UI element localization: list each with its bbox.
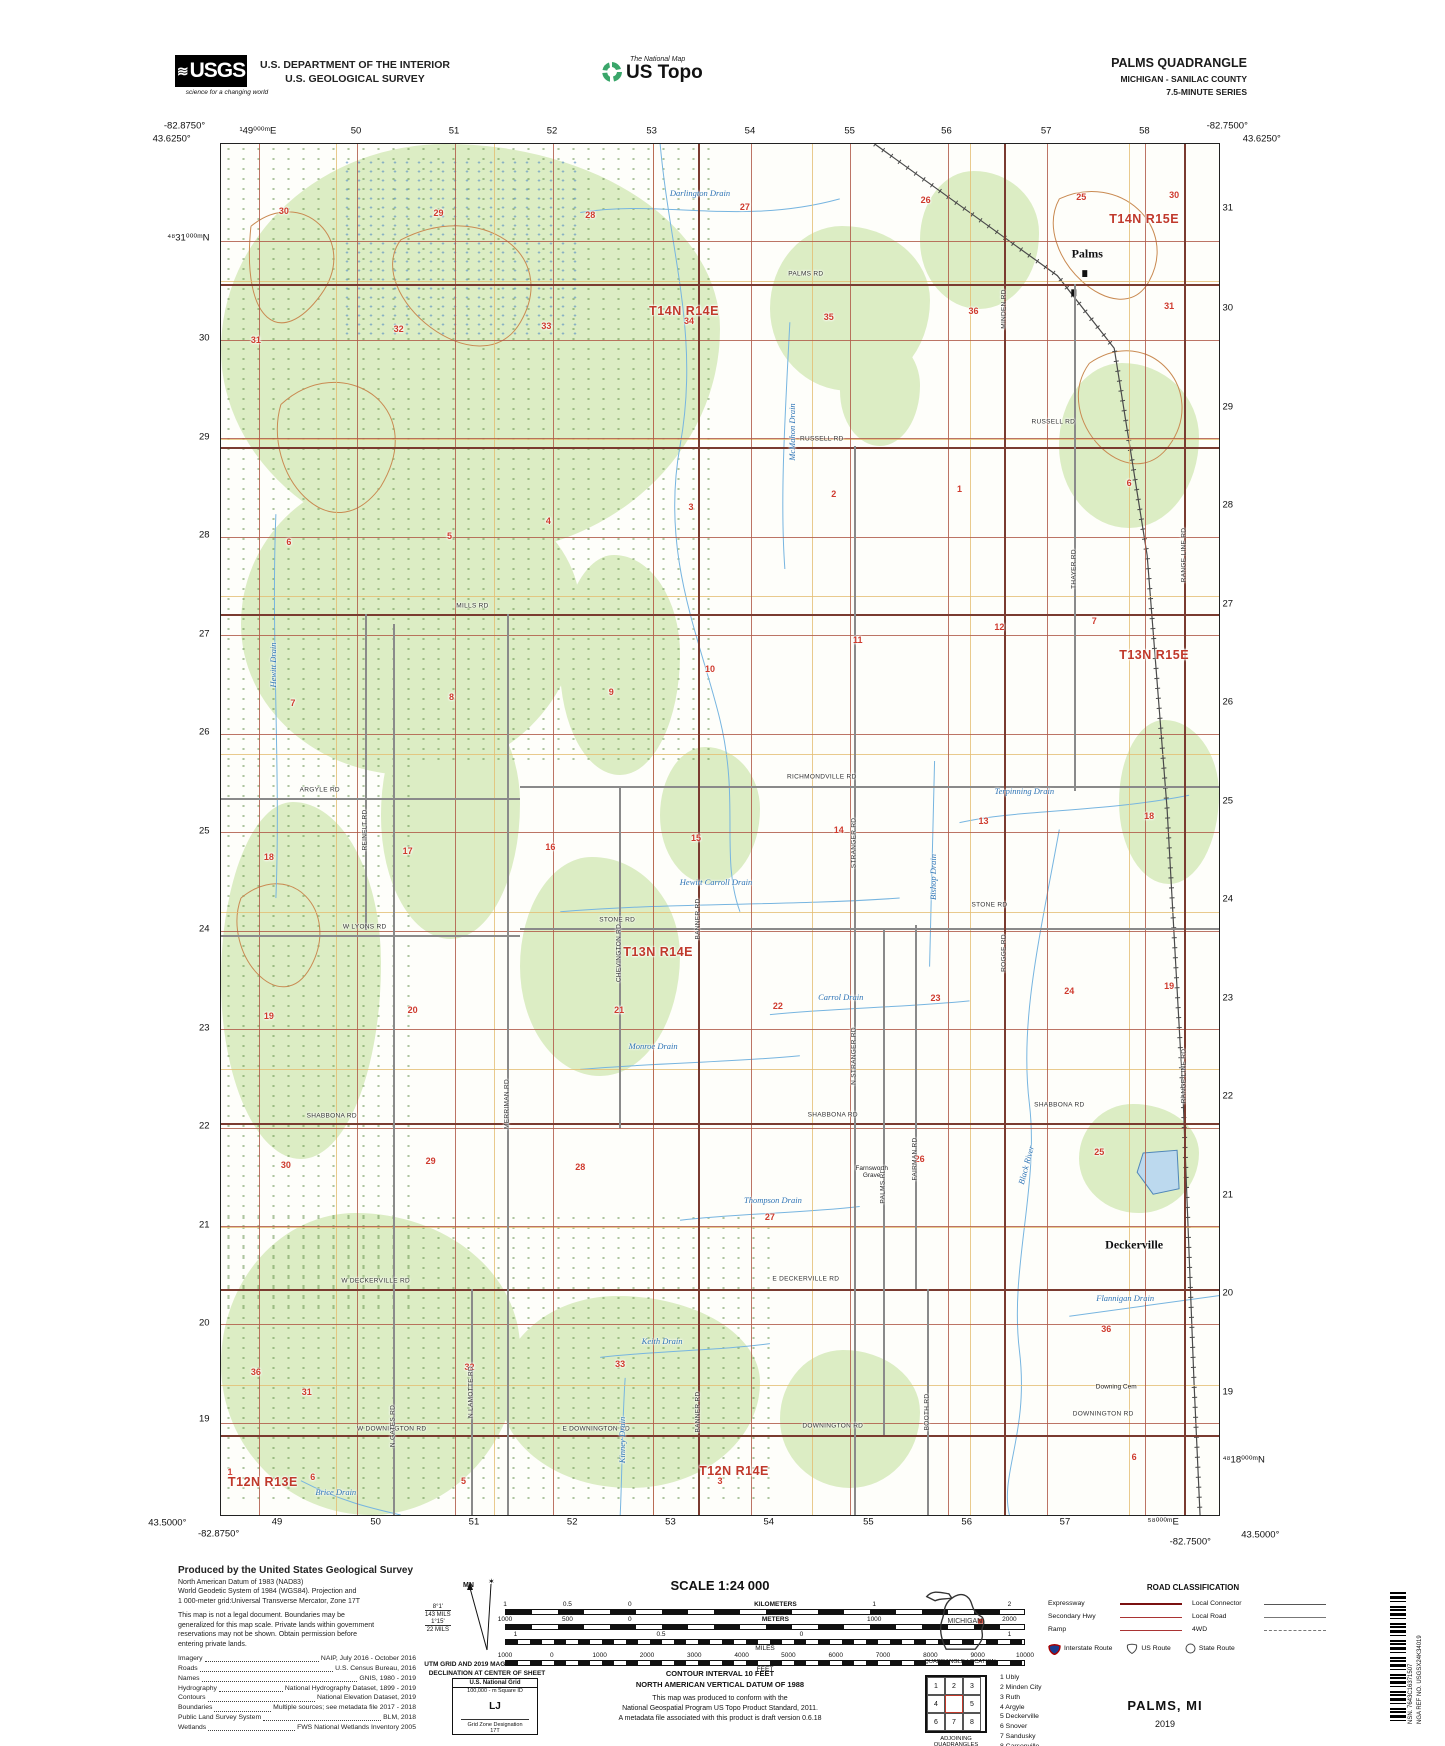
adjoining-cell: 4	[927, 1695, 945, 1713]
road-label: SHABBONA RD	[808, 1111, 858, 1118]
section-number: 27	[740, 202, 750, 212]
utm-grid-line	[455, 144, 456, 1515]
nsn-number: NSN. 7643C16371507	[1408, 1664, 1414, 1724]
section-number: 22	[773, 1001, 783, 1011]
section-line	[221, 281, 1219, 282]
road-label: DOWNINGTON RD	[802, 1422, 863, 1429]
grid-easting-label: 56	[941, 125, 952, 136]
road-line	[365, 614, 367, 929]
grid-easting-label: 55	[844, 125, 855, 136]
section-number: 9	[609, 687, 614, 697]
grid-easting-label: 50	[351, 125, 362, 136]
road-line	[520, 786, 1219, 788]
utm-grid-line	[221, 734, 1219, 735]
section-number: 6	[310, 1472, 315, 1482]
utm-grid-line	[1047, 144, 1048, 1515]
utm-grid-line	[259, 144, 260, 1515]
us-route-shield-icon: US Route	[1126, 1643, 1170, 1654]
road-label: BANNER RD	[695, 898, 702, 939]
section-number: 20	[408, 1005, 418, 1015]
scale-tick-label: 0.5	[563, 1601, 572, 1608]
road-label: MERRIMAN RD	[504, 1079, 511, 1129]
section-number: 19	[264, 1011, 274, 1021]
barcode	[1390, 1592, 1406, 1724]
drain-label: Kinney Drain	[617, 1416, 627, 1463]
grid-easting-label: 52	[567, 1516, 578, 1527]
map-sheet-area[interactable]: 3029282726253031323334353631654321678910…	[220, 143, 1220, 1516]
utm-grid-line	[221, 832, 1219, 833]
usng-square-id: LJ	[453, 1701, 537, 1712]
scale-tick-label: 7000	[876, 1652, 890, 1659]
section-line	[221, 754, 1219, 755]
road-line	[520, 928, 1219, 930]
grid-easting-label: 57	[1060, 1516, 1071, 1527]
utm-grid-line	[221, 537, 1219, 538]
map-artwork	[221, 144, 1219, 1515]
road-label: RUSSELL RD	[1032, 419, 1076, 426]
scale-tick-label: 500	[562, 1616, 573, 1623]
section-number: 5	[447, 531, 452, 541]
grid-easting-label: 56	[961, 1516, 972, 1527]
section-number: 7	[1092, 616, 1097, 626]
palms-building	[1082, 270, 1087, 277]
section-line	[336, 144, 337, 1515]
scale-tick-label: METERS	[762, 1616, 789, 1623]
scale-tick-label: 1000	[592, 1652, 606, 1659]
grid-northing-label: 21	[1222, 1189, 1233, 1200]
section-number: 36	[1101, 1324, 1111, 1334]
town-label: Palms	[1072, 246, 1103, 261]
road-line	[221, 1289, 1219, 1291]
scale-tick-label: 10000	[1016, 1652, 1034, 1659]
section-line	[1129, 144, 1130, 1515]
adjoining-quad-name: 1 Ubly	[1000, 1673, 1042, 1683]
grid-northing-label: 20	[1222, 1287, 1233, 1298]
road-line	[915, 925, 917, 1288]
section-number: 28	[575, 1162, 585, 1172]
grid-easting-label: 54	[763, 1516, 774, 1527]
section-number: 29	[434, 208, 444, 218]
section-number: 2	[831, 489, 836, 499]
data-credits-list: ImageryNAIP, July 2016 - October 2016Roa…	[178, 1654, 416, 1733]
road-line	[698, 144, 700, 1515]
section-line	[970, 144, 971, 1515]
section-number: 33	[541, 321, 551, 331]
grid-northing-label: 29	[199, 432, 210, 443]
section-number: 29	[426, 1156, 436, 1166]
grid-northing-label: ⁴⁸18⁰⁰⁰ᵐN	[1222, 1455, 1264, 1466]
section-number: 15	[691, 833, 701, 843]
utm-grid-line	[653, 144, 654, 1515]
adjoining-quad-name: 4 Argyle	[1000, 1703, 1042, 1713]
section-number: 4	[546, 516, 551, 526]
road-line	[221, 935, 520, 937]
utm-grid-line	[357, 144, 358, 1515]
declination-values: 8°1' 143 MILS 1°15' 22 MILS	[425, 1604, 451, 1634]
credit-row: BoundariesMultiple sources; see metadata…	[178, 1703, 416, 1713]
road-line	[507, 614, 509, 1515]
grid-northing-label: 23	[1222, 993, 1233, 1004]
utm-grid-line	[221, 1226, 1219, 1227]
road-line	[221, 1123, 1219, 1125]
grid-northing-label: 27	[199, 628, 210, 639]
section-number: 30	[1169, 190, 1179, 200]
adjoining-quad-name: 8 Carsonville	[1000, 1742, 1042, 1746]
utm-grid-line	[553, 144, 554, 1515]
road-label: N LAMOTTE RD	[467, 1366, 474, 1418]
road-label: PALMS RD	[788, 271, 823, 278]
grid-northing-label: 31	[1222, 202, 1233, 213]
section-number: 32	[394, 324, 404, 334]
road-line	[221, 614, 1219, 616]
railroad-line	[875, 144, 1200, 1515]
utm-grid-line	[948, 144, 949, 1515]
section-number: 33	[615, 1359, 625, 1369]
grid-northing-label: 21	[199, 1219, 210, 1230]
adjoining-cell: 5	[963, 1695, 981, 1713]
scale-tick-label: 0.5	[656, 1631, 665, 1638]
adjoining-cell	[945, 1695, 963, 1713]
grid-easting-label: 51	[449, 125, 460, 136]
sheet-year: 2019	[1040, 1719, 1290, 1729]
road-line	[854, 446, 856, 1515]
section-number: 19	[1164, 981, 1174, 991]
township-label: T12N R14E	[699, 1464, 769, 1478]
produced-heading: Produced by the United States Geological…	[178, 1565, 416, 1576]
section-number: 7	[290, 698, 295, 708]
adjoining-quad-name: 5 Deckerville	[1000, 1712, 1042, 1722]
road-line	[1074, 284, 1076, 791]
section-number: 25	[1076, 192, 1086, 202]
section-number: 11	[853, 635, 863, 645]
grid-northing-label: 20	[199, 1317, 210, 1328]
drain-label: Carrol Drain	[818, 992, 863, 1002]
road-label: RANGE LINE RD	[1181, 1049, 1188, 1103]
grid-northing-label: 22	[1222, 1090, 1233, 1101]
road-label: BOOTH RD	[923, 1394, 930, 1431]
township-label: T14N R14E	[649, 304, 719, 318]
scale-tick-label: MILES	[755, 1645, 775, 1652]
grid-easting-label: 53	[646, 125, 657, 136]
scale-tick-label: 1	[872, 1601, 876, 1608]
section-number: 8	[449, 692, 454, 702]
grid-northing-label: 30	[199, 333, 210, 344]
road-label: ROGGE RD	[1001, 934, 1008, 972]
section-number: 36	[251, 1367, 261, 1377]
road-line	[1004, 144, 1006, 1515]
adjoining-caption: ADJOINING QUADRANGLES	[925, 1736, 987, 1746]
road-label: STRANGER RD	[850, 818, 857, 869]
grid-northing-label: 25	[1222, 796, 1233, 807]
road-line	[221, 284, 1219, 286]
road-label: STONE RD	[599, 916, 635, 923]
drain-label: Flannigan Drain	[1096, 1293, 1154, 1303]
michigan-outline: MICHIGAN	[917, 1580, 1003, 1652]
road-label: RANGE LINE RD	[1181, 528, 1188, 582]
scale-tick-label: 1	[514, 1631, 518, 1638]
road-line	[393, 624, 395, 1515]
road-label: N STRANGER RD	[850, 1027, 857, 1085]
section-number: 6	[1132, 1452, 1137, 1462]
section-number: 31	[251, 335, 261, 345]
section-line	[221, 1227, 1219, 1228]
section-number: 35	[824, 312, 834, 322]
scale-tick-label: 1000	[498, 1652, 512, 1659]
scale-tick-label: 1	[503, 1601, 507, 1608]
section-line	[221, 1069, 1219, 1070]
grid-northing-label: 26	[199, 726, 210, 737]
section-number: 36	[968, 306, 978, 316]
grid-easting-label: 57	[1041, 125, 1052, 136]
scale-tick-label: 1000	[867, 1616, 881, 1623]
road-line	[221, 1435, 1219, 1437]
road-classification: ROAD CLASSIFICATION ExpresswayLocal Conn…	[1048, 1583, 1338, 1655]
scale-tick-label: 1000	[498, 1616, 512, 1623]
usgs-topo-sheet: ≋ USGS science for a changing world U.S.…	[0, 0, 1445, 1746]
interstate-shield-icon: Interstate Route	[1048, 1643, 1112, 1655]
quadrangle-location-caption: QUADRANGLE LOCATION	[905, 1659, 1015, 1665]
section-number: 30	[281, 1160, 291, 1170]
adjoining-cell: 6	[927, 1713, 945, 1731]
grid-northing-label: 28	[1222, 499, 1233, 510]
grid-easting-label: 55	[863, 1516, 874, 1527]
grid-northing-label: 30	[1222, 302, 1233, 313]
road-label: DOWNINGTON RD	[1073, 1410, 1134, 1417]
utm-grid-line	[221, 1423, 1219, 1424]
adjoining-quad-name: 3 Ruth	[1000, 1693, 1042, 1703]
drain-label: Hewitt Carroll Drain	[680, 877, 752, 887]
section-number: 24	[1064, 986, 1074, 996]
credit-row: ContoursNational Elevation Dataset, 2019	[178, 1693, 416, 1703]
section-number: 3	[689, 502, 694, 512]
section-number: 31	[302, 1387, 312, 1397]
road-label: ARGYLE RD	[300, 786, 340, 793]
production-notes: Produced by the United States Geological…	[178, 1565, 416, 1733]
standard-conformance-note: This map was produced to conform with th…	[575, 1694, 865, 1724]
section-number: 18	[1144, 811, 1154, 821]
grid-easting-label: 49	[272, 1516, 283, 1527]
adjoining-quad-list: 1 Ubly2 Minden City3 Ruth4 Argyle5 Decke…	[1000, 1673, 1042, 1746]
utm-grid-line	[751, 144, 752, 1515]
grid-northing-label: ⁴⁸31⁰⁰⁰ᵐN	[167, 232, 209, 243]
road-line	[221, 798, 520, 800]
section-number: 28	[585, 210, 595, 220]
scale-tick-label: 6000	[828, 1652, 842, 1659]
township-label: T13N R14E	[623, 945, 693, 959]
section-line	[812, 144, 813, 1515]
grid-northing-label: 28	[199, 529, 210, 540]
credit-row: ImageryNAIP, July 2016 - October 2016	[178, 1654, 416, 1664]
road-label: SHABBONA RD	[307, 1113, 357, 1120]
road-label: THAYER RD	[1071, 549, 1078, 589]
corner-coordinate: -82.7500°	[1207, 120, 1248, 131]
section-number: 18	[264, 852, 274, 862]
scale-tick-label: 0	[800, 1631, 804, 1638]
adjoining-cell: 1	[927, 1677, 945, 1695]
corner-coordinate: 43.5000°	[148, 1518, 186, 1529]
section-number: 10	[705, 664, 715, 674]
road-label: W DECKERVILLE RD	[341, 1277, 410, 1284]
quadrangle-location: MICHIGAN QUADRANGLE LOCATION	[905, 1580, 1015, 1665]
section-line	[221, 912, 1219, 913]
road-label: MILLS RD	[456, 603, 488, 610]
grid-easting-label: 52	[547, 125, 558, 136]
grid-easting-label: 51	[469, 1516, 480, 1527]
scale-tick-label: 0	[550, 1652, 554, 1659]
deckerville-pond	[1137, 1150, 1179, 1194]
road-label: FAIRMAN RD	[911, 1137, 918, 1180]
road-label: RICHMONDVILLE RD	[787, 774, 856, 781]
grid-northing-label: 24	[1222, 894, 1233, 905]
utm-grid-line	[221, 340, 1219, 341]
utm-grid-line	[221, 931, 1219, 932]
section-number: 6	[286, 537, 291, 547]
grid-northing-label: 27	[1222, 598, 1233, 609]
township-label: T12N R13E	[228, 1475, 298, 1489]
road-label: RUSSELL RD	[800, 435, 844, 442]
poi-label: Farnsworth Grave	[848, 1165, 896, 1179]
adjoining-cell: 7	[945, 1713, 963, 1731]
grid-easting-label: 54	[745, 125, 756, 136]
utm-grid-line	[221, 438, 1219, 439]
road-classification-title: ROAD CLASSIFICATION	[1048, 1583, 1338, 1592]
roadclass-row: ExpresswayLocal Connector	[1048, 1598, 1338, 1611]
corner-coordinate: -82.7500°	[1170, 1536, 1211, 1547]
town-label: Deckerville	[1105, 1237, 1163, 1252]
road-label: CHEVINGTON RD	[616, 924, 623, 982]
contour-interval-note: CONTOUR INTERVAL 10 FEETNORTH AMERICAN V…	[590, 1668, 850, 1691]
scale-tick-label: 2000	[640, 1652, 654, 1659]
section-number: 13	[978, 816, 988, 826]
road-label: E DECKERVILLE RD	[772, 1276, 839, 1283]
sheet-name: PALMS, MI	[1040, 1698, 1290, 1713]
credit-row: WetlandsFWS National Wetlands Inventory …	[178, 1723, 416, 1733]
utm-grid-line	[221, 241, 1219, 242]
poi-label: Downing Cem	[1096, 1384, 1137, 1391]
adjoining-quad-name: 6 Snover	[1000, 1722, 1042, 1732]
section-number: 25	[1094, 1147, 1104, 1157]
grid-easting-label: ⁵⁸⁰⁰⁰ᵐE	[1148, 1516, 1179, 1527]
grid-northing-label: 24	[199, 924, 210, 935]
corner-coordinate: 43.6250°	[1243, 133, 1281, 144]
adjoining-quadrangles: 12345678 ADJOINING QUADRANGLES	[925, 1675, 987, 1746]
grid-easting-label: 58	[1139, 125, 1150, 136]
credit-row: HydrographyNational Hydrography Dataset,…	[178, 1684, 416, 1694]
section-number: 26	[921, 195, 931, 205]
adjoining-cell: 3	[963, 1677, 981, 1695]
scale-tick-label: KILOMETERS	[754, 1601, 797, 1608]
corner-coordinate: 43.6250°	[153, 133, 191, 144]
credit-row: RoadsU.S. Census Bureau, 2016	[178, 1664, 416, 1674]
section-number: 17	[403, 846, 413, 856]
credit-row: Public Land Survey SystemBLM, 2018	[178, 1713, 416, 1723]
grid-northing-label: 19	[199, 1413, 210, 1424]
drain-label: Darlington Drain	[670, 188, 730, 198]
section-number: 30	[279, 206, 289, 216]
section-number: 16	[545, 842, 555, 852]
grid-northing-label: 29	[1222, 401, 1233, 412]
section-line	[221, 596, 1219, 597]
scale-tick-label: 3000	[687, 1652, 701, 1659]
adjoining-quad-name: 7 Sandusky	[1000, 1732, 1042, 1742]
section-number: 1	[957, 484, 962, 494]
road-label: REINELT RD	[361, 809, 368, 850]
road-line	[221, 447, 1219, 449]
scale-tick-label: 4000	[734, 1652, 748, 1659]
grid-easting-label: 53	[665, 1516, 676, 1527]
drain-label: Keith Drain	[642, 1336, 683, 1346]
roadclass-row: Secondary HwyLocal Road	[1048, 1611, 1338, 1624]
grid-northing-label: 26	[1222, 697, 1233, 708]
section-number: 6	[1127, 478, 1132, 488]
drain-label: Terpinning Drain	[995, 786, 1054, 796]
grid-northing-label: 25	[199, 825, 210, 836]
michigan-label: MICHIGAN	[948, 1618, 983, 1625]
corner-coordinate: -82.8750°	[198, 1528, 239, 1539]
utm-grid-line	[221, 1128, 1219, 1129]
road-label: STONE RD	[972, 901, 1008, 908]
adjoining-quad-name: 2 Minden City	[1000, 1683, 1042, 1693]
usng-box: U.S. National Grid 100,000 - m Square ID…	[452, 1678, 538, 1735]
utm-grid-line	[221, 1029, 1219, 1030]
section-number: 21	[614, 1005, 624, 1015]
grid-northing-label: 19	[1222, 1386, 1233, 1397]
section-number: 14	[834, 825, 844, 835]
road-label: N GATES RD	[389, 1405, 396, 1447]
utm-grid-line	[1145, 144, 1146, 1515]
drain-label: McMahon Drain	[787, 403, 797, 460]
nga-ref-number: NGA REF NO. USGSX24K34019	[1417, 1635, 1423, 1724]
grid-easting-label: 50	[370, 1516, 381, 1527]
adjoining-cell: 2	[945, 1677, 963, 1695]
state-route-icon: State Route	[1185, 1643, 1235, 1654]
section-number: 5	[461, 1476, 466, 1486]
datum-paragraph: North American Datum of 1983 (NAD83)Worl…	[178, 1578, 416, 1606]
sheet-imprint: PALMS, MI 2019	[1040, 1698, 1290, 1729]
section-line	[221, 1385, 1219, 1386]
section-number: 31	[1164, 301, 1174, 311]
section-number: 23	[931, 993, 941, 1003]
township-label: T13N R15E	[1119, 648, 1189, 662]
scale-tick-label: 5000	[781, 1652, 795, 1659]
roadclass-row: Ramp4WD	[1048, 1624, 1338, 1637]
corner-coordinate: -82.8750°	[164, 120, 205, 131]
road-label: SHABBONA RD	[1034, 1102, 1084, 1109]
drain-label: Bishop Drain	[928, 854, 938, 900]
scale-tick-label: 0	[628, 1601, 632, 1608]
drain-label: Brice Drain	[315, 1487, 356, 1497]
road-label: MINDEN RD	[1001, 289, 1008, 329]
road-label: W LYONS RD	[343, 923, 387, 930]
drain-label: Hewitt Drain	[268, 642, 278, 687]
section-line	[494, 144, 495, 1515]
corner-coordinate: 43.5000°	[1241, 1529, 1279, 1540]
adjoining-cell: 8	[963, 1713, 981, 1731]
utm-grid-line	[221, 1324, 1219, 1325]
grid-northing-label: 22	[199, 1120, 210, 1131]
disclaimer-paragraph: This map is not a legal document. Bounda…	[178, 1611, 416, 1649]
credit-row: NamesGNIS, 1980 - 2019	[178, 1674, 416, 1684]
drain-label: Monroe Drain	[629, 1041, 678, 1051]
section-number: 12	[994, 622, 1004, 632]
grid-easting-label: ¹49⁰⁰⁰ᵐE	[239, 125, 276, 136]
road-line	[1184, 144, 1186, 1515]
drain-label: Thompson Drain	[744, 1195, 802, 1205]
utm-grid-line	[221, 635, 1219, 636]
scale-tick-label: 0	[628, 1616, 632, 1623]
grid-northing-label: 23	[199, 1023, 210, 1034]
section-number: 27	[765, 1212, 775, 1222]
